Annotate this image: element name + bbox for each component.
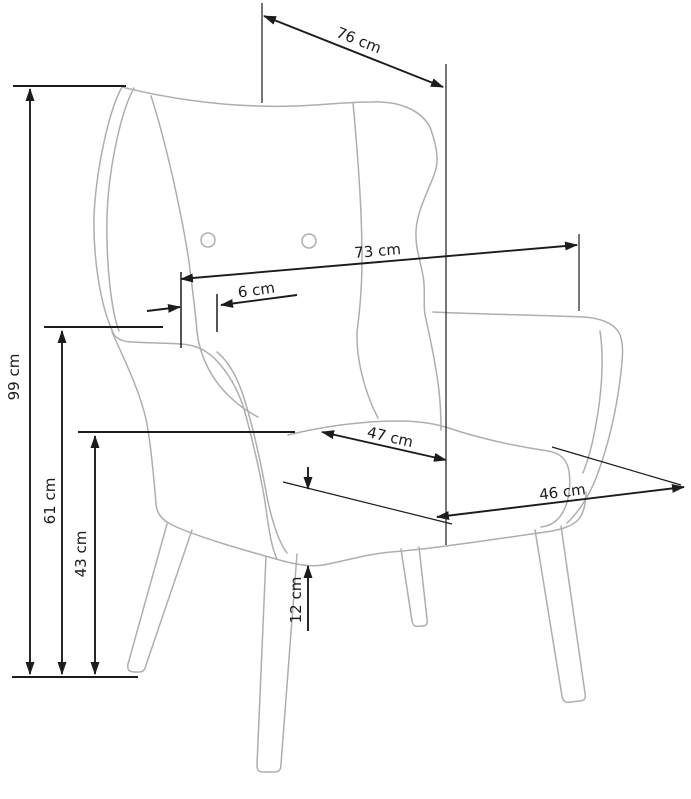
dimension-seat-width-47cm: 47 cm [322, 423, 446, 460]
dimension-cushion-thickness-12cm: 12 cm [287, 467, 308, 631]
chair-back-inner-left-edge [107, 88, 134, 331]
chair-line-drawing [94, 87, 623, 772]
dimension-label-61cm: 61 cm [41, 478, 59, 525]
armchair-dimension-diagram: 76 cm 73 cm 6 cm 99 cm 61 cm 43 cm 47 cm [0, 0, 691, 799]
back-button-left [201, 233, 215, 247]
right-armrest-outer-edge [433, 312, 623, 523]
chair-back-left-seam [151, 96, 258, 417]
dimension-label-76cm: 76 cm [334, 23, 384, 57]
rear-right-leg [535, 526, 585, 702]
front-left-leg [128, 524, 192, 672]
dimension-label-12cm: 12 cm [287, 577, 305, 624]
dimension-arrow-76 [264, 16, 443, 87]
rear-left-leg [401, 547, 427, 626]
right-armrest-inner-edge [583, 331, 602, 473]
witness-line-46-upper [552, 447, 681, 485]
seat-cushion-front-edge [288, 421, 570, 527]
dimension-label-99cm: 99 cm [5, 354, 23, 401]
chair-back-right-wing-edge [416, 127, 441, 430]
dimension-label-43cm: 43 cm [72, 531, 90, 578]
dimension-total-depth-76cm: 76 cm [262, 3, 446, 545]
left-armrest-roll-edge [112, 330, 277, 559]
chair-back-top-edge [122, 87, 430, 127]
left-armrest-outer-edge [112, 332, 172, 525]
left-armrest-inner-edge [217, 352, 287, 553]
diagram-svg: 76 cm 73 cm 6 cm 99 cm 61 cm 43 cm 47 cm [0, 0, 691, 799]
dimension-label-73cm: 73 cm [354, 240, 402, 262]
dimension-seat-depth-46cm: 46 cm [283, 447, 684, 524]
dimension-wing-thickness-6cm: 6 cm [147, 272, 297, 348]
base-apron-bottom-edge [172, 492, 586, 566]
dimension-armrest-height-61cm: 61 cm [41, 327, 163, 674]
dimension-total-height-99cm: 99 cm [5, 86, 138, 677]
dimension-arrow-6-left [147, 307, 180, 311]
back-button-right [302, 234, 316, 248]
